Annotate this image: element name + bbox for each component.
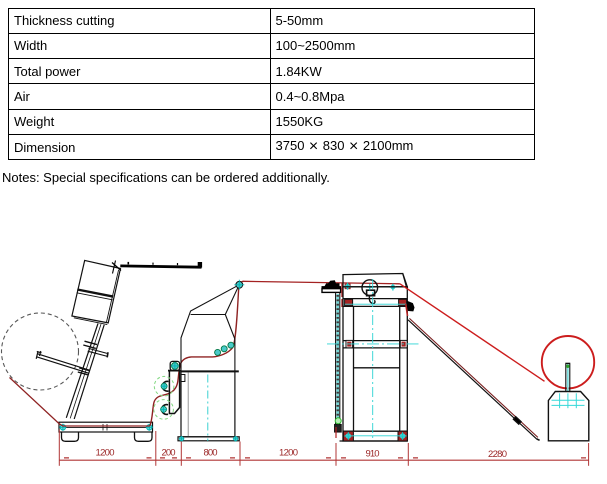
svg-text:2280: 2280 (488, 449, 507, 460)
svg-text:1200: 1200 (279, 448, 298, 459)
svg-text:200: 200 (162, 448, 176, 459)
svg-text:910: 910 (366, 449, 380, 460)
svg-text:1200: 1200 (96, 448, 115, 459)
svg-text:800: 800 (204, 448, 218, 459)
